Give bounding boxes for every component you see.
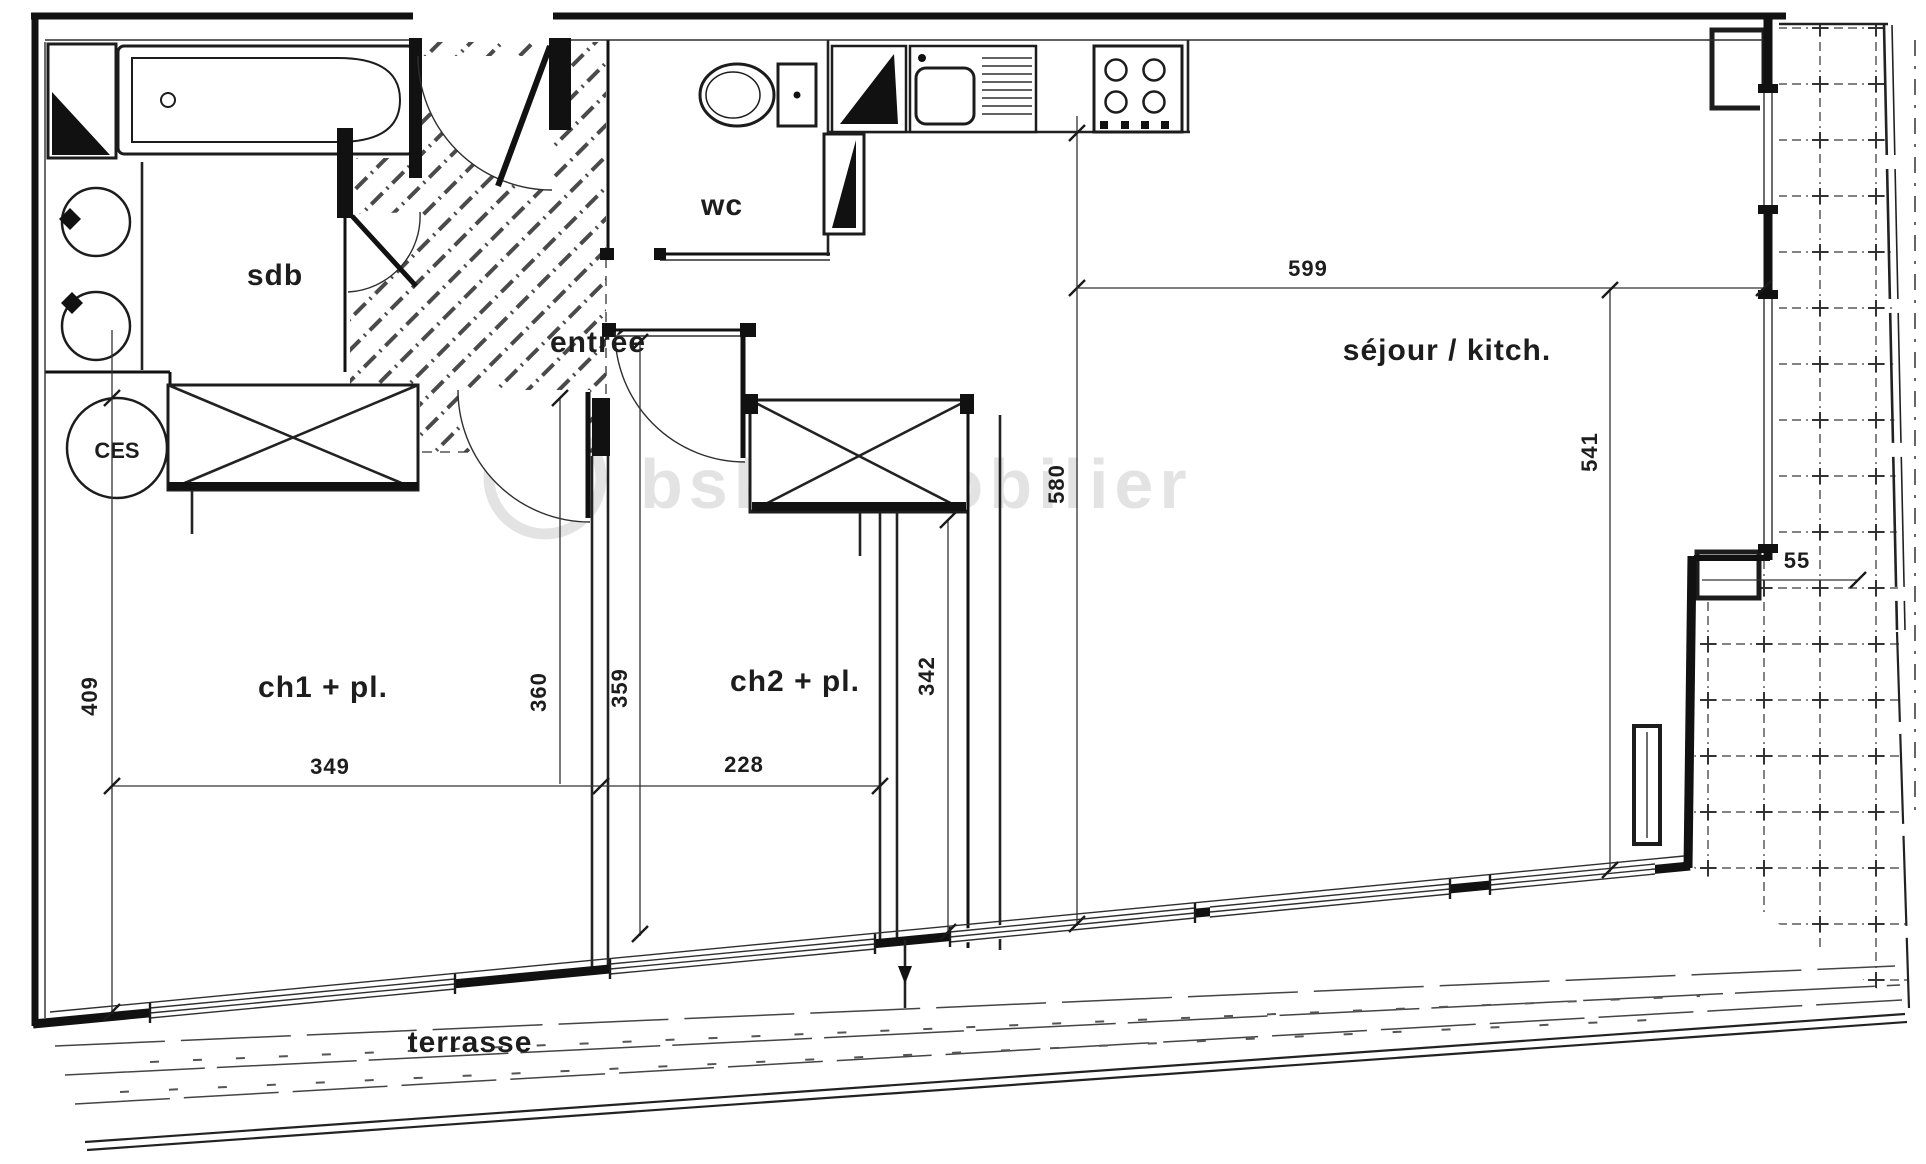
room-label-ch1: ch1 + pl. (258, 671, 388, 704)
stove (1094, 46, 1182, 132)
dim-label-349: 349 (310, 754, 350, 779)
dim-label-228: 228 (724, 752, 764, 777)
room-label-wc: wc (700, 189, 743, 222)
fridge-unit (824, 134, 864, 234)
duct (1712, 30, 1764, 108)
room-label-entree: entrée (550, 326, 646, 359)
bathtub (118, 46, 414, 154)
kitchen-sink (910, 46, 1036, 132)
dim-label-409: 409 (77, 676, 102, 716)
shower-corner (48, 44, 116, 158)
dim-label-360: 360 (526, 672, 551, 712)
washbasin-2 (61, 292, 130, 360)
toilet (700, 64, 816, 126)
dishwasher-unit (832, 46, 906, 132)
floor-plan-drawing: bskimmobilier terrasse (0, 0, 1926, 1164)
dim-label-55: 55 (1784, 548, 1810, 573)
dim-label-580: 580 (1044, 464, 1069, 504)
bedroom-1: ch1 + pl. (258, 671, 388, 704)
room-label-sdb: sdb (247, 259, 303, 292)
right-wall-windows (1758, 84, 1778, 553)
room-label-terrasse: terrasse (408, 1026, 533, 1059)
dim-label-359: 359 (607, 668, 632, 708)
dim-label-541: 541 (1577, 432, 1602, 472)
room-label-ces: CES (94, 438, 139, 463)
dim-label-342: 342 (914, 656, 939, 696)
dim-label-599: 599 (1288, 256, 1328, 281)
room-label-sejour: séjour / kitch. (1343, 334, 1551, 367)
floor-plan-page: bskimmobilier terrasse (0, 0, 1926, 1164)
water-heater: CES (67, 398, 167, 498)
room-label-ch2: ch2 + pl. (730, 665, 860, 698)
